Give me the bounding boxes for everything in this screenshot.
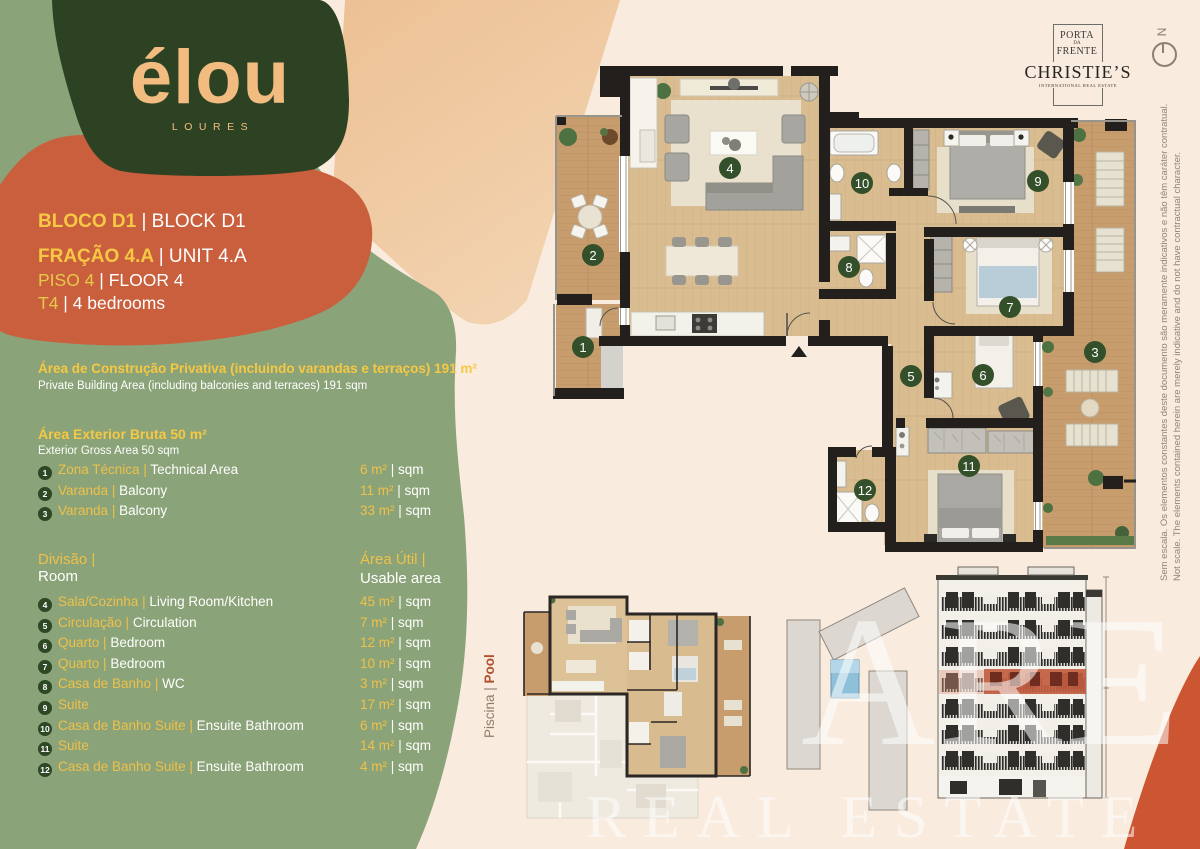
svg-text:7: 7 (1006, 300, 1013, 315)
svg-text:ARE: ARE (801, 579, 1182, 785)
svg-text:4: 4 (726, 161, 733, 176)
svg-text:10: 10 (855, 176, 869, 191)
svg-text:12: 12 (858, 483, 872, 498)
svg-text:5: 5 (907, 369, 914, 384)
svg-text:11: 11 (962, 459, 976, 474)
svg-text:6: 6 (979, 368, 986, 383)
svg-text:2: 2 (589, 248, 596, 263)
svg-text:8: 8 (845, 260, 852, 275)
svg-text:9: 9 (1034, 174, 1041, 189)
svg-text:1: 1 (579, 340, 586, 355)
svg-text:REAL ESTATE: REAL ESTATE (586, 784, 1154, 849)
svg-text:3: 3 (1091, 345, 1098, 360)
